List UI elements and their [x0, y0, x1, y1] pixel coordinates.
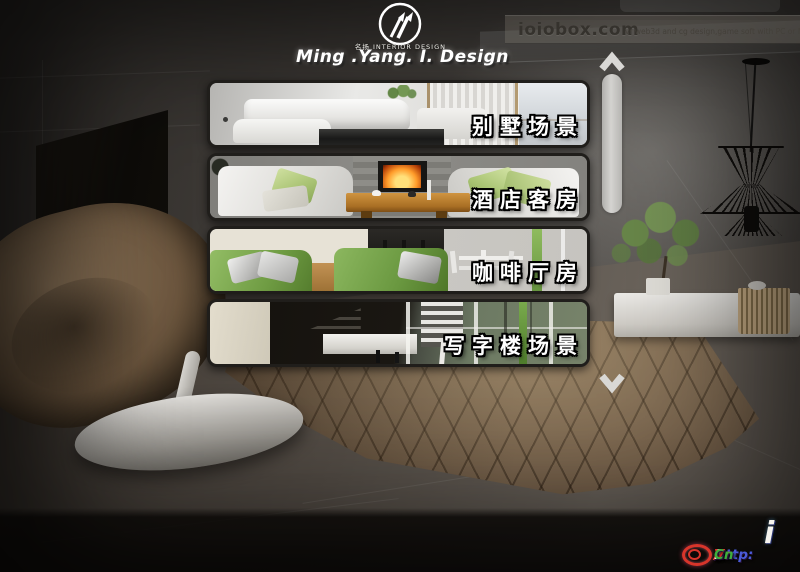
window-mullion-shape	[406, 302, 410, 364]
pendant-lamp-rim	[718, 146, 784, 148]
table-leg-shape	[436, 211, 447, 218]
menu-item-label: 酒店客房	[472, 184, 584, 214]
menu-item-villa-scene[interactable]: 别墅场景	[207, 80, 590, 148]
stool-shape	[395, 352, 399, 363]
watermark-i-mark: i	[764, 516, 774, 551]
watermark: i Http://1Vr.Cn	[676, 520, 800, 570]
glass-table-shape	[319, 129, 443, 145]
plant-pot	[646, 278, 670, 295]
desk-shape	[323, 334, 417, 354]
watermark-url-segment: Cn	[714, 547, 734, 563]
app-window: 名扬 INTERIOR DESIGN Ming .Yang. I. Design…	[0, 0, 800, 572]
cup-shape	[408, 191, 416, 197]
brand-logo[interactable]: 名扬 INTERIOR DESIGN Ming .Yang. I. Design	[296, 0, 506, 72]
table-leg-shape	[361, 211, 372, 218]
ceiling-highlight	[620, 0, 780, 12]
scroll-down-button[interactable]	[598, 372, 626, 394]
chaise-shape	[233, 119, 331, 143]
plant-shape	[383, 85, 417, 101]
menu-item-label: 咖啡厅房	[472, 257, 584, 287]
chevron-up-icon	[598, 51, 626, 73]
chevron-down-icon	[598, 372, 626, 394]
scrollbar-thumb[interactable]	[602, 74, 622, 213]
site-tagline: vr web3d and cg design,game soft with PC…	[625, 27, 800, 36]
scroll-up-button[interactable]	[598, 51, 626, 73]
staircase-shape	[300, 308, 360, 333]
brand-title: Ming .Yang. I. Design	[296, 47, 506, 67]
chair-shape	[450, 251, 457, 273]
watermark-swirl-icon	[688, 549, 701, 560]
vase-shape	[427, 180, 431, 200]
stool-shape	[376, 350, 380, 362]
bowl	[748, 281, 766, 290]
site-banner: ioiobox.com vr web3d and cg design,game …	[505, 15, 800, 44]
fire-shape	[383, 165, 421, 189]
menu-item-cafe-room[interactable]: 咖啡厅房	[207, 226, 590, 294]
menu-item-label: 写字楼场景	[444, 330, 584, 360]
cup-shape	[372, 190, 381, 196]
window-rail-shape	[406, 327, 587, 329]
striped-throw	[738, 288, 790, 334]
menu-item-hotel-room[interactable]: 酒店客房	[207, 153, 590, 221]
pendant-lamp-core	[744, 206, 759, 232]
socket-shape	[223, 117, 228, 122]
menu-item-label: 别墅场景	[472, 111, 584, 141]
pillar-shape	[210, 302, 270, 364]
wall-tile-line	[0, 70, 210, 78]
site-name: ioiobox.com	[518, 20, 639, 40]
menu-item-office-scene[interactable]: 写字楼场景	[207, 299, 590, 367]
